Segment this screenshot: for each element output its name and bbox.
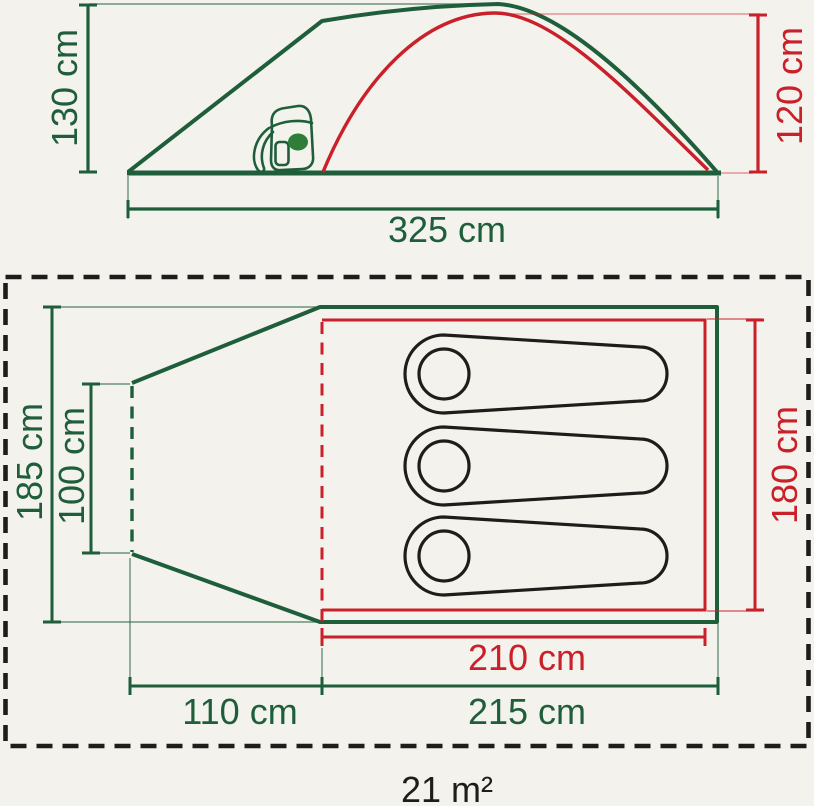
sleeping-bag-1 [405, 335, 667, 413]
sleeping-bag-3 [405, 517, 667, 595]
inner-width-label: 180 cm [764, 406, 805, 524]
footprint-area-label: 21 m² [401, 769, 493, 806]
backpack-pocket [276, 142, 289, 165]
sleeping-bag-3-hood [419, 531, 469, 581]
porch-length-label: 110 cm [182, 691, 297, 732]
length-label: 325 cm [388, 209, 506, 250]
floor-plan: 185 cm 100 cm 180 cm 210 cm 110 cm 215 [6, 277, 809, 746]
sleeping-bags [405, 335, 667, 595]
outer-height-label: 130 cm [44, 29, 85, 147]
inner-cabin-outline [322, 320, 705, 610]
inner-tent-arc [323, 13, 708, 172]
side-view: 130 cm 120 cm 325 cm [44, 4, 810, 250]
pitch-area-dashed-border [6, 277, 809, 746]
tent-profile-outline [128, 4, 717, 172]
backpack-flap-seam [271, 121, 312, 127]
width-label: 185 cm [9, 403, 50, 521]
sleeping-bag-1-hood [419, 349, 469, 399]
backpack-icon [254, 106, 313, 172]
bottom-extension-lines [130, 558, 718, 694]
sleeping-bag-2-hood [419, 441, 469, 491]
floor-outline [132, 307, 717, 622]
inner-length-label: 210 cm [468, 637, 586, 678]
sleeping-bag-2 [405, 427, 667, 505]
cabin-length-label: 215 cm [468, 691, 586, 732]
backpack-buckle [288, 134, 308, 151]
door-width-label: 100 cm [51, 407, 92, 525]
diagram-canvas: 130 cm 120 cm 325 cm [0, 0, 814, 806]
inner-height-label: 120 cm [769, 27, 810, 145]
tent-dimensions-diagram: 130 cm 120 cm 325 cm [0, 0, 814, 806]
